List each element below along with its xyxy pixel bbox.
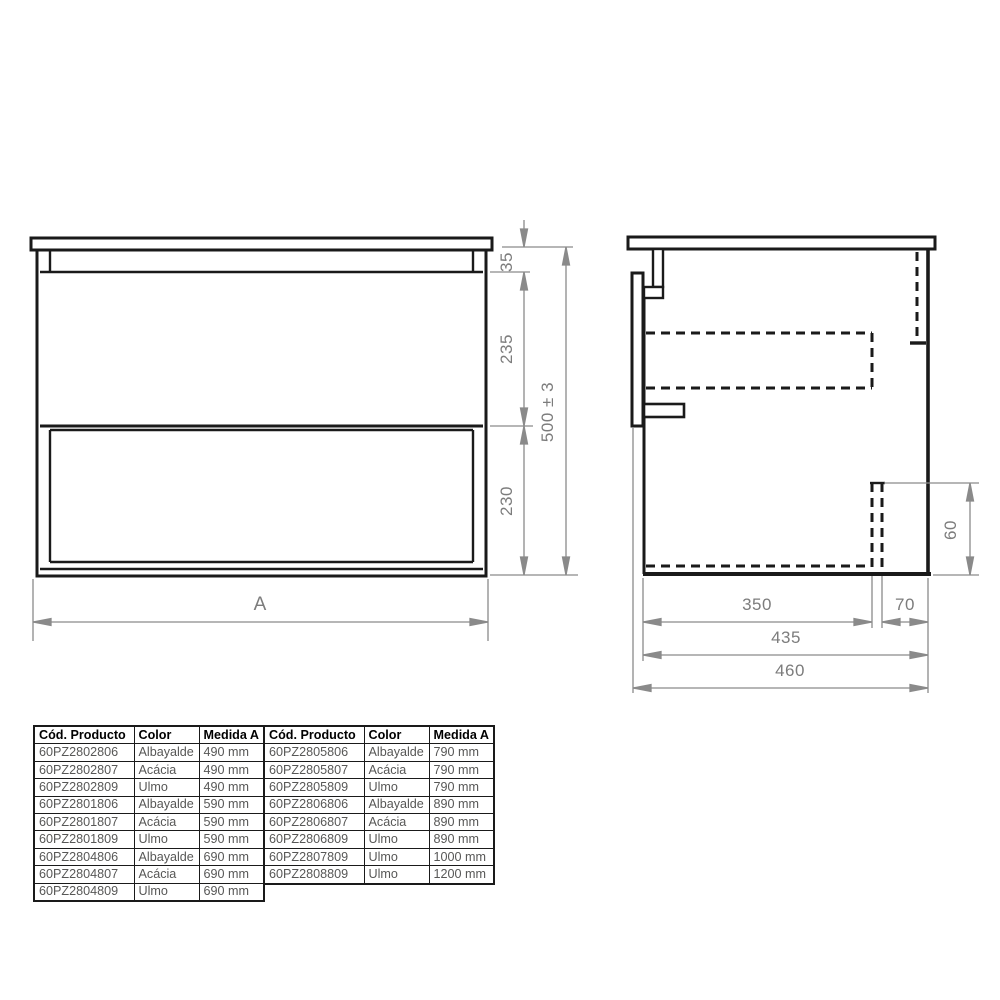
table-cell: 490 mm	[199, 779, 264, 796]
table-row: 60PZ2805806Albayalde790 mm	[264, 744, 494, 761]
product-table-left: Cód. ProductoColorMedida A60PZ2802806Alb…	[33, 725, 265, 902]
table-cell: 60PZ2806807	[264, 813, 364, 830]
table-cell: 60PZ2805807	[264, 761, 364, 778]
table-header-row: Cód. ProductoColorMedida A	[264, 726, 494, 744]
table-cell: 590 mm	[199, 796, 264, 813]
table-cell: Albayalde	[134, 744, 199, 761]
table-row: 60PZ2804806Albayalde690 mm	[34, 848, 264, 865]
table-row: 60PZ2805809Ulmo790 mm	[264, 779, 494, 796]
table-cell: 590 mm	[199, 831, 264, 848]
table-cell: Ulmo	[364, 866, 429, 884]
table-cell: 490 mm	[199, 744, 264, 761]
dimension-label-350: 350	[742, 595, 772, 614]
column-header: Color	[134, 726, 199, 744]
table-cell: 60PZ2801806	[34, 796, 134, 813]
table-row: 60PZ2806809Ulmo890 mm	[264, 831, 494, 848]
column-header: Cód. Producto	[264, 726, 364, 744]
table-cell: Acácia	[364, 813, 429, 830]
table-cell: 890 mm	[429, 796, 494, 813]
dimension-label-A: A	[254, 594, 267, 615]
table-cell: 60PZ2807809	[264, 848, 364, 865]
dimension-label-460: 460	[775, 661, 805, 680]
table-cell: Acácia	[134, 761, 199, 778]
column-header: Cód. Producto	[34, 726, 134, 744]
table-cell: 1200 mm	[429, 866, 494, 884]
dimension-label-70: 70	[895, 595, 915, 614]
column-header: Medida A	[199, 726, 264, 744]
table-row: 60PZ2802806Albayalde490 mm	[34, 744, 264, 761]
table-cell: Ulmo	[364, 848, 429, 865]
dimension-label-35: 35	[497, 252, 516, 272]
table-cell: 60PZ2805806	[264, 744, 364, 761]
table-cell: 60PZ2804809	[34, 883, 134, 901]
table-header-row: Cód. ProductoColorMedida A	[34, 726, 264, 744]
table-row: 60PZ2802809Ulmo490 mm	[34, 779, 264, 796]
hidden-drawer-box	[646, 333, 872, 388]
table-cell: Acácia	[364, 761, 429, 778]
table-cell: 60PZ2804806	[34, 848, 134, 865]
table-row: 60PZ2804809Ulmo690 mm	[34, 883, 264, 901]
table-cell: 890 mm	[429, 831, 494, 848]
drawer-front-panel-side	[632, 273, 643, 426]
table-row: 60PZ2807809Ulmo1000 mm	[264, 848, 494, 865]
column-header: Color	[364, 726, 429, 744]
table-cell: 60PZ2806809	[264, 831, 364, 848]
drawer-runner	[644, 404, 684, 417]
table-cell: 60PZ2801807	[34, 813, 134, 830]
table-cell: 60PZ2802809	[34, 779, 134, 796]
table-cell: 60PZ2808809	[264, 866, 364, 884]
table-cell: 690 mm	[199, 866, 264, 883]
dimension-label-235: 235	[497, 334, 516, 364]
table-cell: 1000 mm	[429, 848, 494, 865]
table-row: 60PZ2801807Acácia590 mm	[34, 813, 264, 830]
countertop-side	[628, 237, 935, 249]
dimension-label-60: 60	[941, 520, 960, 540]
hidden-rear-panel	[870, 483, 885, 571]
dimension-label-230: 230	[497, 486, 516, 516]
table-cell: Albayalde	[134, 848, 199, 865]
table-cell: 890 mm	[429, 813, 494, 830]
column-header: Medida A	[429, 726, 494, 744]
table-cell: Ulmo	[364, 831, 429, 848]
technical-drawing-sheet: 35 235 230 500 ± 3 A	[0, 0, 1000, 1000]
countertop-front	[31, 238, 492, 250]
dimension-label-500: 500 ± 3	[538, 382, 557, 442]
front-view	[31, 238, 492, 576]
table-cell: Acácia	[134, 813, 199, 830]
table-row: 60PZ2805807Acácia790 mm	[264, 761, 494, 778]
table-cell: 690 mm	[199, 883, 264, 901]
table-row: 60PZ2801809Ulmo590 mm	[34, 831, 264, 848]
table-cell: 590 mm	[199, 813, 264, 830]
table-cell: Albayalde	[364, 796, 429, 813]
table-cell: 60PZ2805809	[264, 779, 364, 796]
table-row: 60PZ2806806Albayalde890 mm	[264, 796, 494, 813]
table-row: 60PZ2808809Ulmo1200 mm	[264, 866, 494, 884]
table-cell: Acácia	[134, 866, 199, 883]
table-cell: Ulmo	[134, 779, 199, 796]
table-cell: Ulmo	[134, 831, 199, 848]
table-cell: 690 mm	[199, 848, 264, 865]
table-cell: 60PZ2806806	[264, 796, 364, 813]
front-rail-section	[644, 249, 663, 298]
table-cell: 790 mm	[429, 761, 494, 778]
table-cell: 60PZ2804807	[34, 866, 134, 883]
dimension-label-435: 435	[771, 628, 801, 647]
table-cell: 60PZ2802807	[34, 761, 134, 778]
side-view	[628, 237, 935, 575]
table-cell: Ulmo	[364, 779, 429, 796]
table-row: 60PZ2804807Acácia690 mm	[34, 866, 264, 883]
product-table-right: Cód. ProductoColorMedida A60PZ2805806Alb…	[263, 725, 495, 885]
table-cell: 60PZ2802806	[34, 744, 134, 761]
table-cell: Albayalde	[364, 744, 429, 761]
table-cell: Ulmo	[134, 883, 199, 901]
table-cell: 790 mm	[429, 744, 494, 761]
table-cell: Albayalde	[134, 796, 199, 813]
table-cell: 490 mm	[199, 761, 264, 778]
table-row: 60PZ2806807Acácia890 mm	[264, 813, 494, 830]
hanging-rail-recess	[910, 252, 926, 343]
table-row: 60PZ2801806Albayalde590 mm	[34, 796, 264, 813]
table-cell: 60PZ2801809	[34, 831, 134, 848]
table-row: 60PZ2802807Acácia490 mm	[34, 761, 264, 778]
table-cell: 790 mm	[429, 779, 494, 796]
cabinet-body-front	[37, 250, 486, 576]
